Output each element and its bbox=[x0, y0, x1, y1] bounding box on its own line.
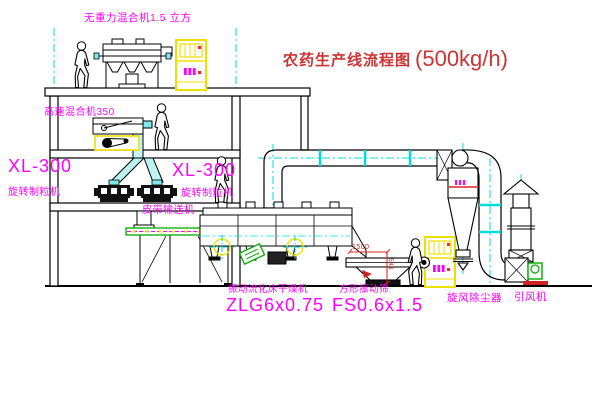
high-speed-mixer-label: 高速混合机350 bbox=[44, 108, 115, 118]
title-capacity: (500kg/h) bbox=[415, 48, 508, 70]
fan-label: 引风机 bbox=[514, 292, 547, 303]
induced-draft-fan-icon bbox=[505, 258, 548, 285]
y-chute-pipe bbox=[110, 158, 163, 182]
granulator-left-name-label: 旋转制粒机 bbox=[8, 188, 61, 198]
dimension-height-label: 541 bbox=[387, 258, 394, 270]
person-icon bbox=[408, 239, 422, 285]
belt-conveyor-label: 皮带输送机 bbox=[142, 206, 195, 216]
screen-model-label: FS0.6x1.5 bbox=[332, 296, 423, 314]
dimension-length-label: 1500 bbox=[352, 244, 370, 251]
person-icon bbox=[75, 42, 89, 88]
dryer-name-label: 振动流化床干燥机 bbox=[228, 285, 308, 295]
control-cabinet-icon bbox=[176, 40, 206, 90]
diagram-title: 农药生产线流程图 (500kg/h) bbox=[283, 48, 508, 70]
granulator-right-name-label: 旋转制粒机 bbox=[181, 189, 234, 199]
screen-name-label: 方形振动筛 bbox=[339, 285, 389, 295]
granulator-icon bbox=[94, 180, 134, 202]
gravity-mixer-icon bbox=[94, 39, 172, 88]
dryer-model-label: ZLG6x0.75 bbox=[226, 296, 324, 314]
granulator-right-model-label: XL-300 bbox=[172, 161, 236, 179]
granulator-icon bbox=[137, 180, 177, 202]
gravity-mixer-label: 无重力混合机1.5 立方 bbox=[84, 13, 192, 24]
pesticide-line-flow-diagram: 农药生产线流程图 (500kg/h) 无重力混合机1.5 立方 高速混合机350… bbox=[0, 0, 600, 403]
title-text: 农药生产线流程图 bbox=[283, 52, 411, 70]
granulator-left-model-label: XL-300 bbox=[8, 157, 72, 175]
person-icon bbox=[155, 104, 169, 150]
cyclone-label: 旋风除尘器 bbox=[447, 293, 502, 304]
